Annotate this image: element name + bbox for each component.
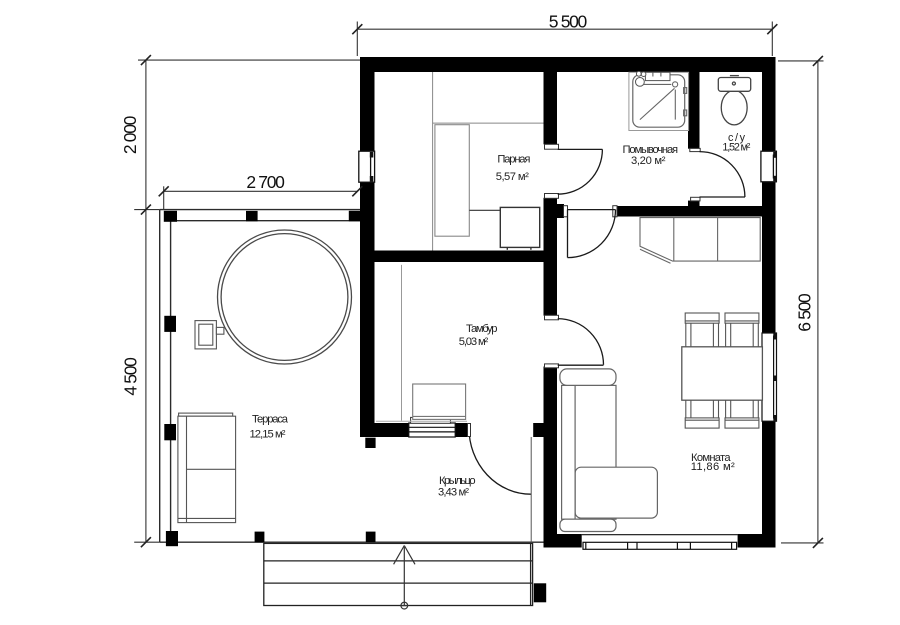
svg-text:4 500: 4 500 <box>121 357 141 396</box>
svg-text:11,86 м²: 11,86 м² <box>691 461 735 473</box>
svg-text:Крыльцо: Крыльцо <box>439 475 476 487</box>
svg-text:12,15 м²: 12,15 м² <box>250 428 286 440</box>
svg-text:Помывочная: Помывочная <box>623 144 679 156</box>
svg-text:1,52 м²: 1,52 м² <box>722 141 750 153</box>
svg-text:Парная: Парная <box>497 153 530 165</box>
svg-text:5,57 м²: 5,57 м² <box>496 171 529 183</box>
svg-text:2 000: 2 000 <box>120 115 140 154</box>
svg-text:5,03 м²: 5,03 м² <box>459 336 489 348</box>
svg-text:2 700: 2 700 <box>246 172 285 192</box>
svg-text:3,43 м²: 3,43 м² <box>438 486 469 498</box>
svg-text:6 500: 6 500 <box>794 293 814 332</box>
svg-text:Терраса: Терраса <box>252 413 289 425</box>
svg-text:Тамбур: Тамбур <box>466 323 498 335</box>
svg-text:5 500: 5 500 <box>549 12 588 32</box>
svg-text:3,20 м²: 3,20 м² <box>631 155 666 167</box>
